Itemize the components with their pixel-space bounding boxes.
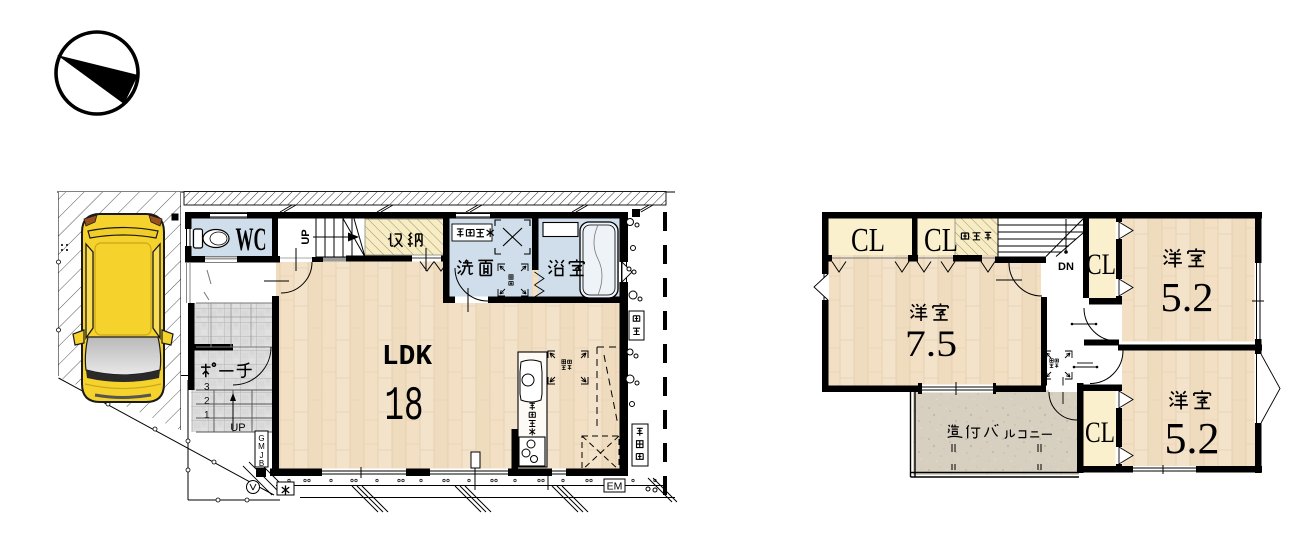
svg-text:7.5: 7.5 bbox=[905, 324, 957, 365]
svg-text:UP: UP bbox=[300, 229, 312, 244]
svg-text:CL: CL bbox=[851, 222, 885, 259]
svg-text:WC: WC bbox=[236, 222, 267, 258]
svg-text:5.2: 5.2 bbox=[1161, 274, 1214, 320]
svg-text:LDK: LDK bbox=[382, 340, 433, 373]
svg-text:B: B bbox=[259, 459, 264, 468]
svg-text:3: 3 bbox=[204, 382, 210, 393]
svg-text:5.2: 5.2 bbox=[1165, 414, 1220, 463]
svg-text:1: 1 bbox=[204, 410, 210, 421]
svg-text:UP: UP bbox=[230, 422, 245, 434]
svg-text:CL: CL bbox=[1085, 416, 1115, 449]
svg-text:CL: CL bbox=[1086, 248, 1116, 281]
svg-text:2: 2 bbox=[204, 396, 210, 407]
svg-text:M: M bbox=[258, 442, 265, 451]
svg-text:CL: CL bbox=[924, 222, 958, 259]
svg-text:18: 18 bbox=[385, 380, 424, 434]
svg-text:DN: DN bbox=[1058, 261, 1074, 273]
svg-text:EM: EM bbox=[607, 481, 623, 493]
